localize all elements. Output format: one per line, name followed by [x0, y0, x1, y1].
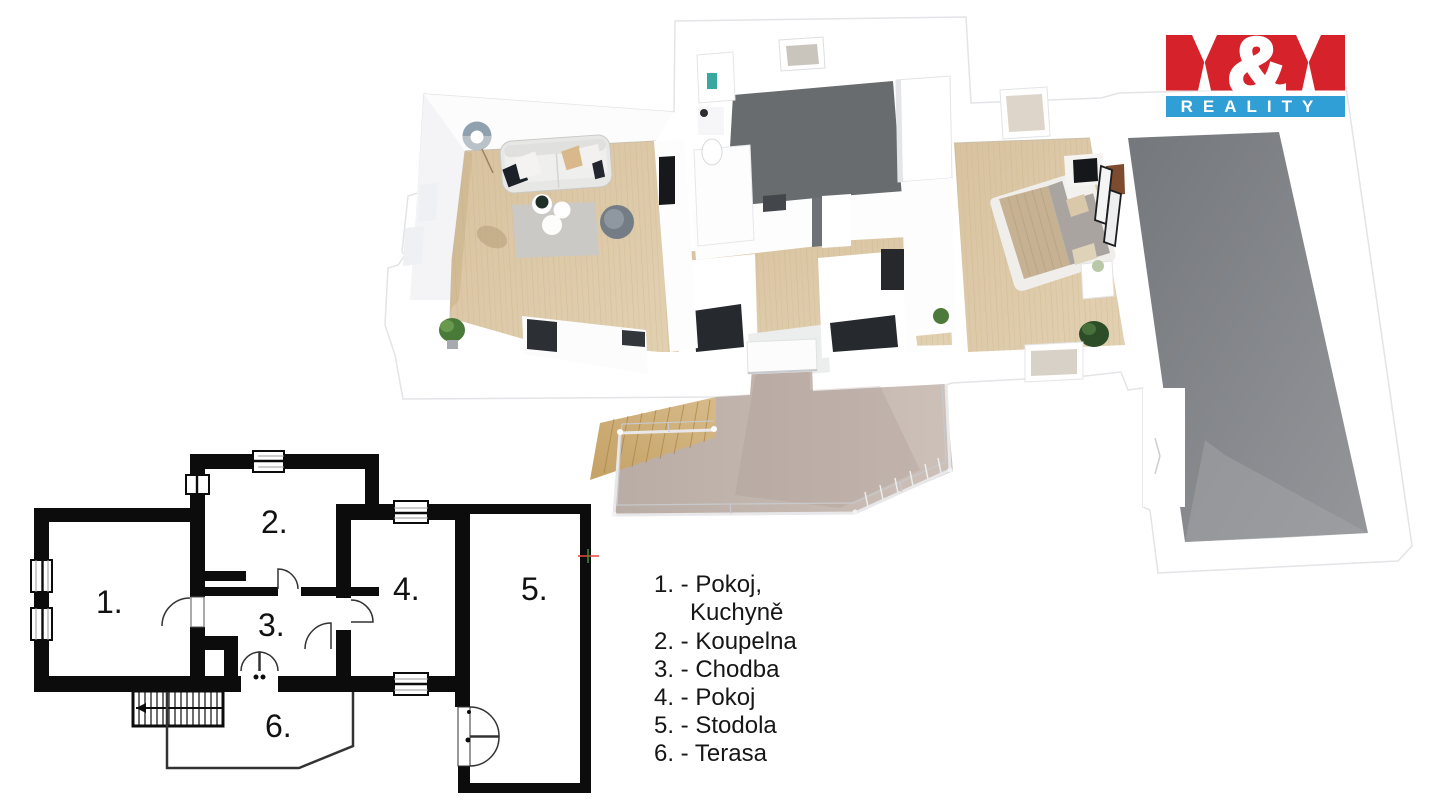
svg-text:3.: 3.	[258, 607, 285, 643]
svg-text:2. - Koupelna: 2. - Koupelna	[654, 628, 797, 655]
svg-text:4.: 4.	[393, 571, 420, 607]
svg-text:1.: 1.	[96, 584, 123, 620]
svg-text:5.: 5.	[521, 571, 548, 607]
svg-text:3. - Chodba: 3. - Chodba	[654, 656, 780, 683]
svg-text:Kuchyně: Kuchyně	[690, 599, 783, 626]
svg-text:4. - Pokoj: 4. - Pokoj	[654, 684, 755, 711]
svg-text:6.: 6.	[265, 708, 292, 744]
svg-text:1. - Pokoj,: 1. - Pokoj,	[654, 571, 762, 598]
svg-text:REALITY: REALITY	[1181, 97, 1324, 116]
svg-text:2.: 2.	[261, 504, 288, 540]
svg-text:5. - Stodola: 5. - Stodola	[654, 712, 777, 739]
svg-text:6. - Terasa: 6. - Terasa	[654, 740, 768, 767]
